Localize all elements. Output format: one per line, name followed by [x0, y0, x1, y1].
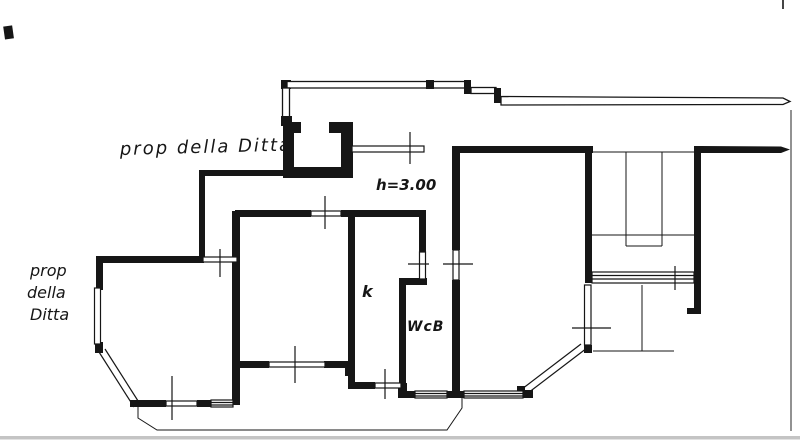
- middle-room-bottom-wall: [233, 361, 269, 368]
- shaft-rectangle: [626, 152, 662, 246]
- ink-blot-artifact: [3, 25, 14, 39]
- window-middle-room-bottom: [269, 346, 325, 383]
- floor-plan-drawing: prop della Ditta prop della Ditta h=3.00…: [0, 0, 800, 443]
- window-living-bottom-hatched: [464, 391, 523, 398]
- living-left-wall-upper: [452, 149, 460, 250]
- stair-core-door-opening: [301, 122, 329, 133]
- balcony-outline: [281, 80, 790, 126]
- parapet-jog-block: [464, 80, 471, 94]
- neighbor-wall-tapered: [701, 146, 790, 153]
- bottom-wall-segment: [447, 391, 464, 398]
- middle-room-top-wall-left: [235, 210, 311, 217]
- window-middle-room-top: [311, 196, 341, 229]
- parapet-pier: [426, 80, 434, 89]
- center-vertical-wall: [232, 211, 240, 405]
- label-kitchen: k: [362, 282, 374, 301]
- stairwell-left-wall: [585, 149, 592, 283]
- parapet-jog-wall: [471, 88, 496, 94]
- kitchen-right-wall: [419, 212, 426, 252]
- hall-left-wall: [199, 170, 205, 262]
- window-wc-bottom-hatched: [415, 391, 447, 398]
- label-bathroom: WcB: [407, 319, 444, 335]
- living-left-wall-lower: [452, 280, 460, 398]
- door-wc: [408, 252, 429, 279]
- label-property-left-1: prop: [29, 261, 67, 280]
- stair-core-interior: [294, 133, 341, 167]
- parapet-wall-top: [287, 82, 465, 89]
- floor-plan-page: prop della Ditta prop della Ditta h=3.00…: [0, 0, 800, 443]
- parapet-wall-left: [283, 88, 290, 117]
- bottom-wall-segment: [523, 390, 533, 398]
- window-kitchen-bottom: [375, 369, 401, 399]
- window-bay-bottom: [166, 376, 197, 420]
- window-stairwell-bottom: [592, 266, 694, 290]
- left-room-top-wall: [96, 256, 204, 263]
- label-property-left-3: Ditta: [30, 305, 69, 324]
- parapet-jog-block-2: [494, 88, 501, 103]
- hall-top-wall: [199, 170, 287, 176]
- bottom-step-block-2: [345, 366, 355, 376]
- label-ceiling-height: h=3.00: [376, 176, 436, 194]
- bottom-wall-pier: [197, 400, 211, 407]
- window-living-chamfer: [522, 344, 587, 393]
- stair-core: [283, 122, 353, 178]
- window-bay-bottom-hatched: [211, 400, 233, 407]
- scan-edge-line: [0, 436, 800, 440]
- door-living: [443, 250, 473, 280]
- bay-bottom-wall: [130, 400, 166, 407]
- living-top-wall: [452, 146, 593, 153]
- wc-left-wall: [399, 280, 406, 396]
- label-property-top: prop della Ditta: [119, 134, 293, 160]
- door-hall-to-left-room: [203, 249, 237, 277]
- stairwell-wall-hook: [687, 308, 695, 314]
- left-room-left-wall: [96, 256, 103, 290]
- door-hall-top: [352, 132, 424, 164]
- parapet-long-wall: [501, 97, 790, 106]
- kitchen-bottom-wall: [348, 382, 375, 389]
- window-living-right: [572, 285, 611, 345]
- stairwell-right-wall: [694, 146, 701, 314]
- window-left-bay-diagonal: [99, 349, 140, 407]
- label-property-left-2: della: [27, 283, 66, 302]
- window-left-bay-side: [95, 288, 101, 344]
